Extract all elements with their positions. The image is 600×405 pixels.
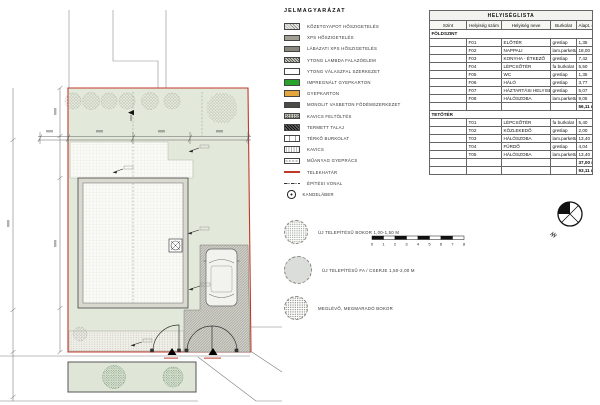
legend-item-label: YTONG VÁLASZFAL SZERKEZET — [307, 69, 380, 74]
room-name: FÜRDŐ — [502, 143, 551, 151]
building-line-symbol — [284, 183, 300, 184]
scale-tick: 0 — [371, 242, 374, 247]
xps-insulation-swatch — [284, 35, 300, 42]
room-number: F01 — [467, 38, 502, 46]
room-schedule-table: HELYISÉGLISTA Szint Helyiség szám Helyis… — [429, 10, 593, 175]
legend-item: YTONG VÁLASZFAL SZERKEZET — [284, 66, 432, 77]
new-bush-icon — [284, 220, 308, 244]
grand-total: 93,11 m² — [577, 167, 593, 175]
legend-item-label: LÁBAZATI XPS HŐSZIGETELÉS — [307, 46, 377, 51]
scale-tick: 3 — [405, 242, 408, 247]
plot-boundary-line-symbol — [284, 171, 300, 172]
legend-item: KAVICS — [284, 144, 432, 155]
scale-tick: 7 — [451, 242, 454, 247]
table-row: T01LÉPCSŐTÉRfa burkolat5,40 — [430, 119, 593, 127]
room-number: T01 — [467, 119, 502, 127]
existing-bush-large — [207, 93, 238, 124]
room-flooring: greslap — [551, 70, 577, 78]
table-row: F04LÉPCSŐTÉRfa burkolat5,50 — [430, 62, 593, 70]
room-flooring: greslap — [551, 54, 577, 62]
table-row: T03HÁLÓSZOBAlam.parketta13,40 — [430, 135, 593, 143]
table-row: T05HÁLÓSZOBAlam.parketta13,40 — [430, 151, 593, 159]
scale-tick: 5 — [428, 242, 431, 247]
section-label: FÖLDSZINT — [430, 30, 593, 39]
room-flooring: greslap — [551, 38, 577, 46]
legend-item-label: MONOLIT VASBETON FÖDÉMSZERKEZET — [307, 102, 400, 107]
legend-item: LÁBAZATI XPS HŐSZIGETELÉS — [284, 43, 432, 54]
gravel-swatch — [284, 146, 300, 153]
room-area: 9,05 — [577, 94, 593, 102]
legend-item: XPS HŐSZIGETELÉS — [284, 32, 432, 43]
room-flooring: fa burkolat — [551, 119, 577, 127]
room-area: 1,35 — [577, 38, 593, 46]
orange-lawn-swatch — [284, 90, 300, 97]
table-row: T02KÖZLEKEDŐgreslap2,00 — [430, 127, 593, 135]
plant-legend-item: MEGLÉVŐ, MEGMARADÓ BOKOR — [284, 296, 432, 320]
room-number: F04 — [467, 62, 502, 70]
legend-item-label: XPS HŐSZIGETELÉS — [307, 35, 354, 40]
table-row: F02NAPPALIlam.parketta18,00 — [430, 46, 593, 54]
room-area: 18,00 — [577, 46, 593, 54]
room-name: HÁZTARTÁSI HELYISÉG — [502, 86, 551, 94]
legend-item: MŰANYAG GYEPRÁCS — [284, 155, 432, 166]
room-name: ELŐTÉR — [502, 38, 551, 46]
legend-item-label: KŐZETGYAPOT HŐSZIGETELÉS — [307, 24, 379, 29]
legend-title: JELMAGYARÁZAT — [284, 8, 432, 14]
section-subtotal: 37,00 m² — [577, 159, 593, 167]
legend: JELMAGYARÁZAT KŐZETGYAPOT HŐSZIGETELÉS X… — [284, 8, 432, 320]
room-name: WC — [502, 70, 551, 78]
plinth-xps-swatch — [284, 46, 300, 53]
green-lawn-swatch — [284, 79, 300, 86]
north-arrow-black-sector — [558, 202, 570, 214]
room-name: HÁLÓ — [502, 78, 551, 86]
col-header: Szint — [430, 21, 467, 30]
legend-item: KŐZETGYAPOT HŐSZIGETELÉS — [284, 21, 432, 32]
room-name: LÉPCSŐTÉR — [502, 62, 551, 70]
table-row: T04FÜRDŐgreslap4,04 — [430, 143, 593, 151]
plant-legend-label: ÚJ TELEPÍTÉSŰ FA / CSERJE 1,50-2,00 M — [322, 268, 415, 273]
drawing-sheet: JELMAGYARÁZAT KŐZETGYAPOT HŐSZIGETELÉS X… — [0, 0, 600, 405]
table-row: F01ELŐTÉRgreslap1,35 — [430, 38, 593, 46]
col-header: Helyiség szám — [467, 21, 502, 30]
room-name: HÁLÓSZOBA — [502, 135, 551, 143]
room-number: F05 — [467, 70, 502, 78]
legend-item-label: ÉPÍTÉSI VONAL — [307, 181, 343, 186]
native-soil-swatch — [284, 124, 300, 131]
room-number: T04 — [467, 143, 502, 151]
room-area: 5,50 — [577, 62, 593, 70]
col-header: Burkolat — [551, 21, 577, 30]
legend-item: TÉRKŐ BURKOLAT — [284, 133, 432, 144]
plant-legend-label: MEGLÉVŐ, MEGMARADÓ BOKOR — [318, 306, 393, 311]
room-number: T02 — [467, 127, 502, 135]
legend-item: KAVICS FELTÖLTÉS — [284, 111, 432, 122]
legend-item-label: KAVICS — [307, 147, 324, 152]
room-area: 2,00 — [577, 127, 593, 135]
room-number: F03 — [467, 54, 502, 62]
legend-item-label: TÉRKŐ BURKOLAT — [307, 136, 349, 141]
scale-tick: 1 — [382, 242, 385, 247]
table-row: F05WCgreslap1,35 — [430, 70, 593, 78]
schedule-header-row: Szint Helyiség szám Helyiség neve Burkol… — [430, 21, 593, 30]
legend-item: MONOLIT VASBETON FÖDÉMSZERKEZET — [284, 99, 432, 110]
room-name: LÉPCSŐTÉR — [502, 119, 551, 127]
room-flooring: greslap — [551, 78, 577, 86]
ytong-wall-swatch — [284, 57, 300, 64]
legend-item-label: IMPREGNÁLT GYEPKARTON — [307, 80, 371, 85]
room-area: 5,40 — [577, 119, 593, 127]
legend-item-label: MŰANYAG GYEPRÁCS — [307, 158, 357, 163]
rockwool-insulation-swatch — [284, 23, 300, 30]
room-area: 13,40 — [577, 135, 593, 143]
street-verge — [68, 362, 196, 392]
legend-item-label: GYEPKARTON — [307, 91, 339, 96]
legend-item: KANDELÁBER — [284, 189, 432, 200]
grass-grid-swatch — [284, 158, 300, 165]
subtotal-row: 37,00 m² — [430, 159, 593, 167]
subtotal-row: 56,11 m² — [430, 102, 593, 110]
room-name: HÁLÓSZOBA — [502, 151, 551, 159]
table-row: F03KONYHA - ÉTKEZŐgreslap7,42 — [430, 54, 593, 62]
table-row: F08HÁLÓSZOBAlam.parketta9,05 — [430, 94, 593, 102]
legend-item: GYEPKARTON — [284, 88, 432, 99]
room-area: 7,42 — [577, 54, 593, 62]
room-area: 3,77 — [577, 78, 593, 86]
scale-tick: 4 — [417, 242, 420, 247]
legend-item-label: TELEKHATÁR — [307, 170, 337, 175]
table-row: F06HÁLÓgreslap3,77 — [430, 78, 593, 86]
legend-item: TELEKHATÁR — [284, 166, 432, 177]
room-flooring: greslap — [551, 86, 577, 94]
concrete-slab-swatch — [284, 102, 300, 109]
room-flooring: fa burkolat — [551, 62, 577, 70]
schedule-title: HELYISÉGLISTA — [430, 11, 593, 21]
ytong-partition-swatch — [284, 68, 300, 75]
manhole-symbol — [169, 239, 182, 252]
room-name: KÖZLEKEDŐ — [502, 127, 551, 135]
room-number: F08 — [467, 94, 502, 102]
room-area: 4,04 — [577, 143, 593, 151]
room-name: NAPPALI — [502, 46, 551, 54]
room-schedule: HELYISÉGLISTA Szint Helyiség szám Helyis… — [429, 10, 593, 175]
room-name: HÁLÓSZOBA — [502, 94, 551, 102]
existing-bush-icon — [284, 296, 308, 320]
legend-item-label: TERMETT TALAJ — [307, 125, 344, 130]
scale-bar: 0 1 2 3 4 5 6 7 8 — [366, 234, 470, 253]
room-area: 1,35 — [577, 70, 593, 78]
legend-item: IMPREGNÁLT GYEPKARTON — [284, 77, 432, 88]
col-header: Helyiség neve — [502, 21, 551, 30]
north-arrow — [546, 197, 590, 248]
room-area: 13,40 — [577, 151, 593, 159]
room-flooring: greslap — [551, 143, 577, 151]
paving-stone-swatch — [284, 135, 300, 142]
room-number: T03 — [467, 135, 502, 143]
section-subtotal: 56,11 m² — [577, 102, 593, 110]
room-area: 5,07 — [577, 86, 593, 94]
room-flooring: lam.parketta — [551, 135, 577, 143]
new-tree-shrub-icon — [284, 256, 312, 284]
room-number: F06 — [467, 78, 502, 86]
north-annotation-scribble — [550, 233, 557, 238]
legend-item-label: KAVICS FELTÖLTÉS — [307, 114, 352, 119]
scale-tick: 2 — [394, 242, 397, 247]
legend-item: TERMETT TALAJ — [284, 122, 432, 133]
site-plan-drawing — [0, 0, 283, 405]
room-flooring: lam.parketta — [551, 46, 577, 54]
scale-tick: 8 — [463, 242, 466, 247]
room-flooring: lam.parketta — [551, 151, 577, 159]
neighbour-boundary-lines — [69, 10, 166, 88]
gravel-fill-swatch — [284, 113, 300, 120]
room-number: F07 — [467, 86, 502, 94]
total-row: 93,11 m² — [430, 167, 593, 175]
legend-item: ÉPÍTÉSI VONAL — [284, 178, 432, 189]
section-label: TETŐTÉR — [430, 110, 593, 119]
room-flooring: lam.parketta — [551, 94, 577, 102]
room-number: T05 — [467, 151, 502, 159]
lamp-post-icon — [287, 190, 296, 199]
table-row: F07HÁZTARTÁSI HELYISÉGgreslap5,07 — [430, 86, 593, 94]
scale-tick: 6 — [440, 242, 443, 247]
col-header: Alapt. (m²) — [577, 21, 593, 30]
plant-legend-item: ÚJ TELEPÍTÉSŰ FA / CSERJE 1,50-2,00 M — [284, 256, 432, 284]
legend-item-label: KANDELÁBER — [303, 192, 334, 197]
street-tree — [103, 366, 126, 389]
room-flooring: greslap — [551, 127, 577, 135]
legend-item-label: YTONG LAMBDA FALAZÓELEM — [307, 58, 376, 63]
room-name: KONYHA - ÉTKEZŐ — [502, 54, 551, 62]
room-number: F02 — [467, 46, 502, 54]
street-tree — [163, 367, 183, 387]
legend-item: YTONG LAMBDA FALAZÓELEM — [284, 55, 432, 66]
car-symbol — [204, 249, 240, 306]
